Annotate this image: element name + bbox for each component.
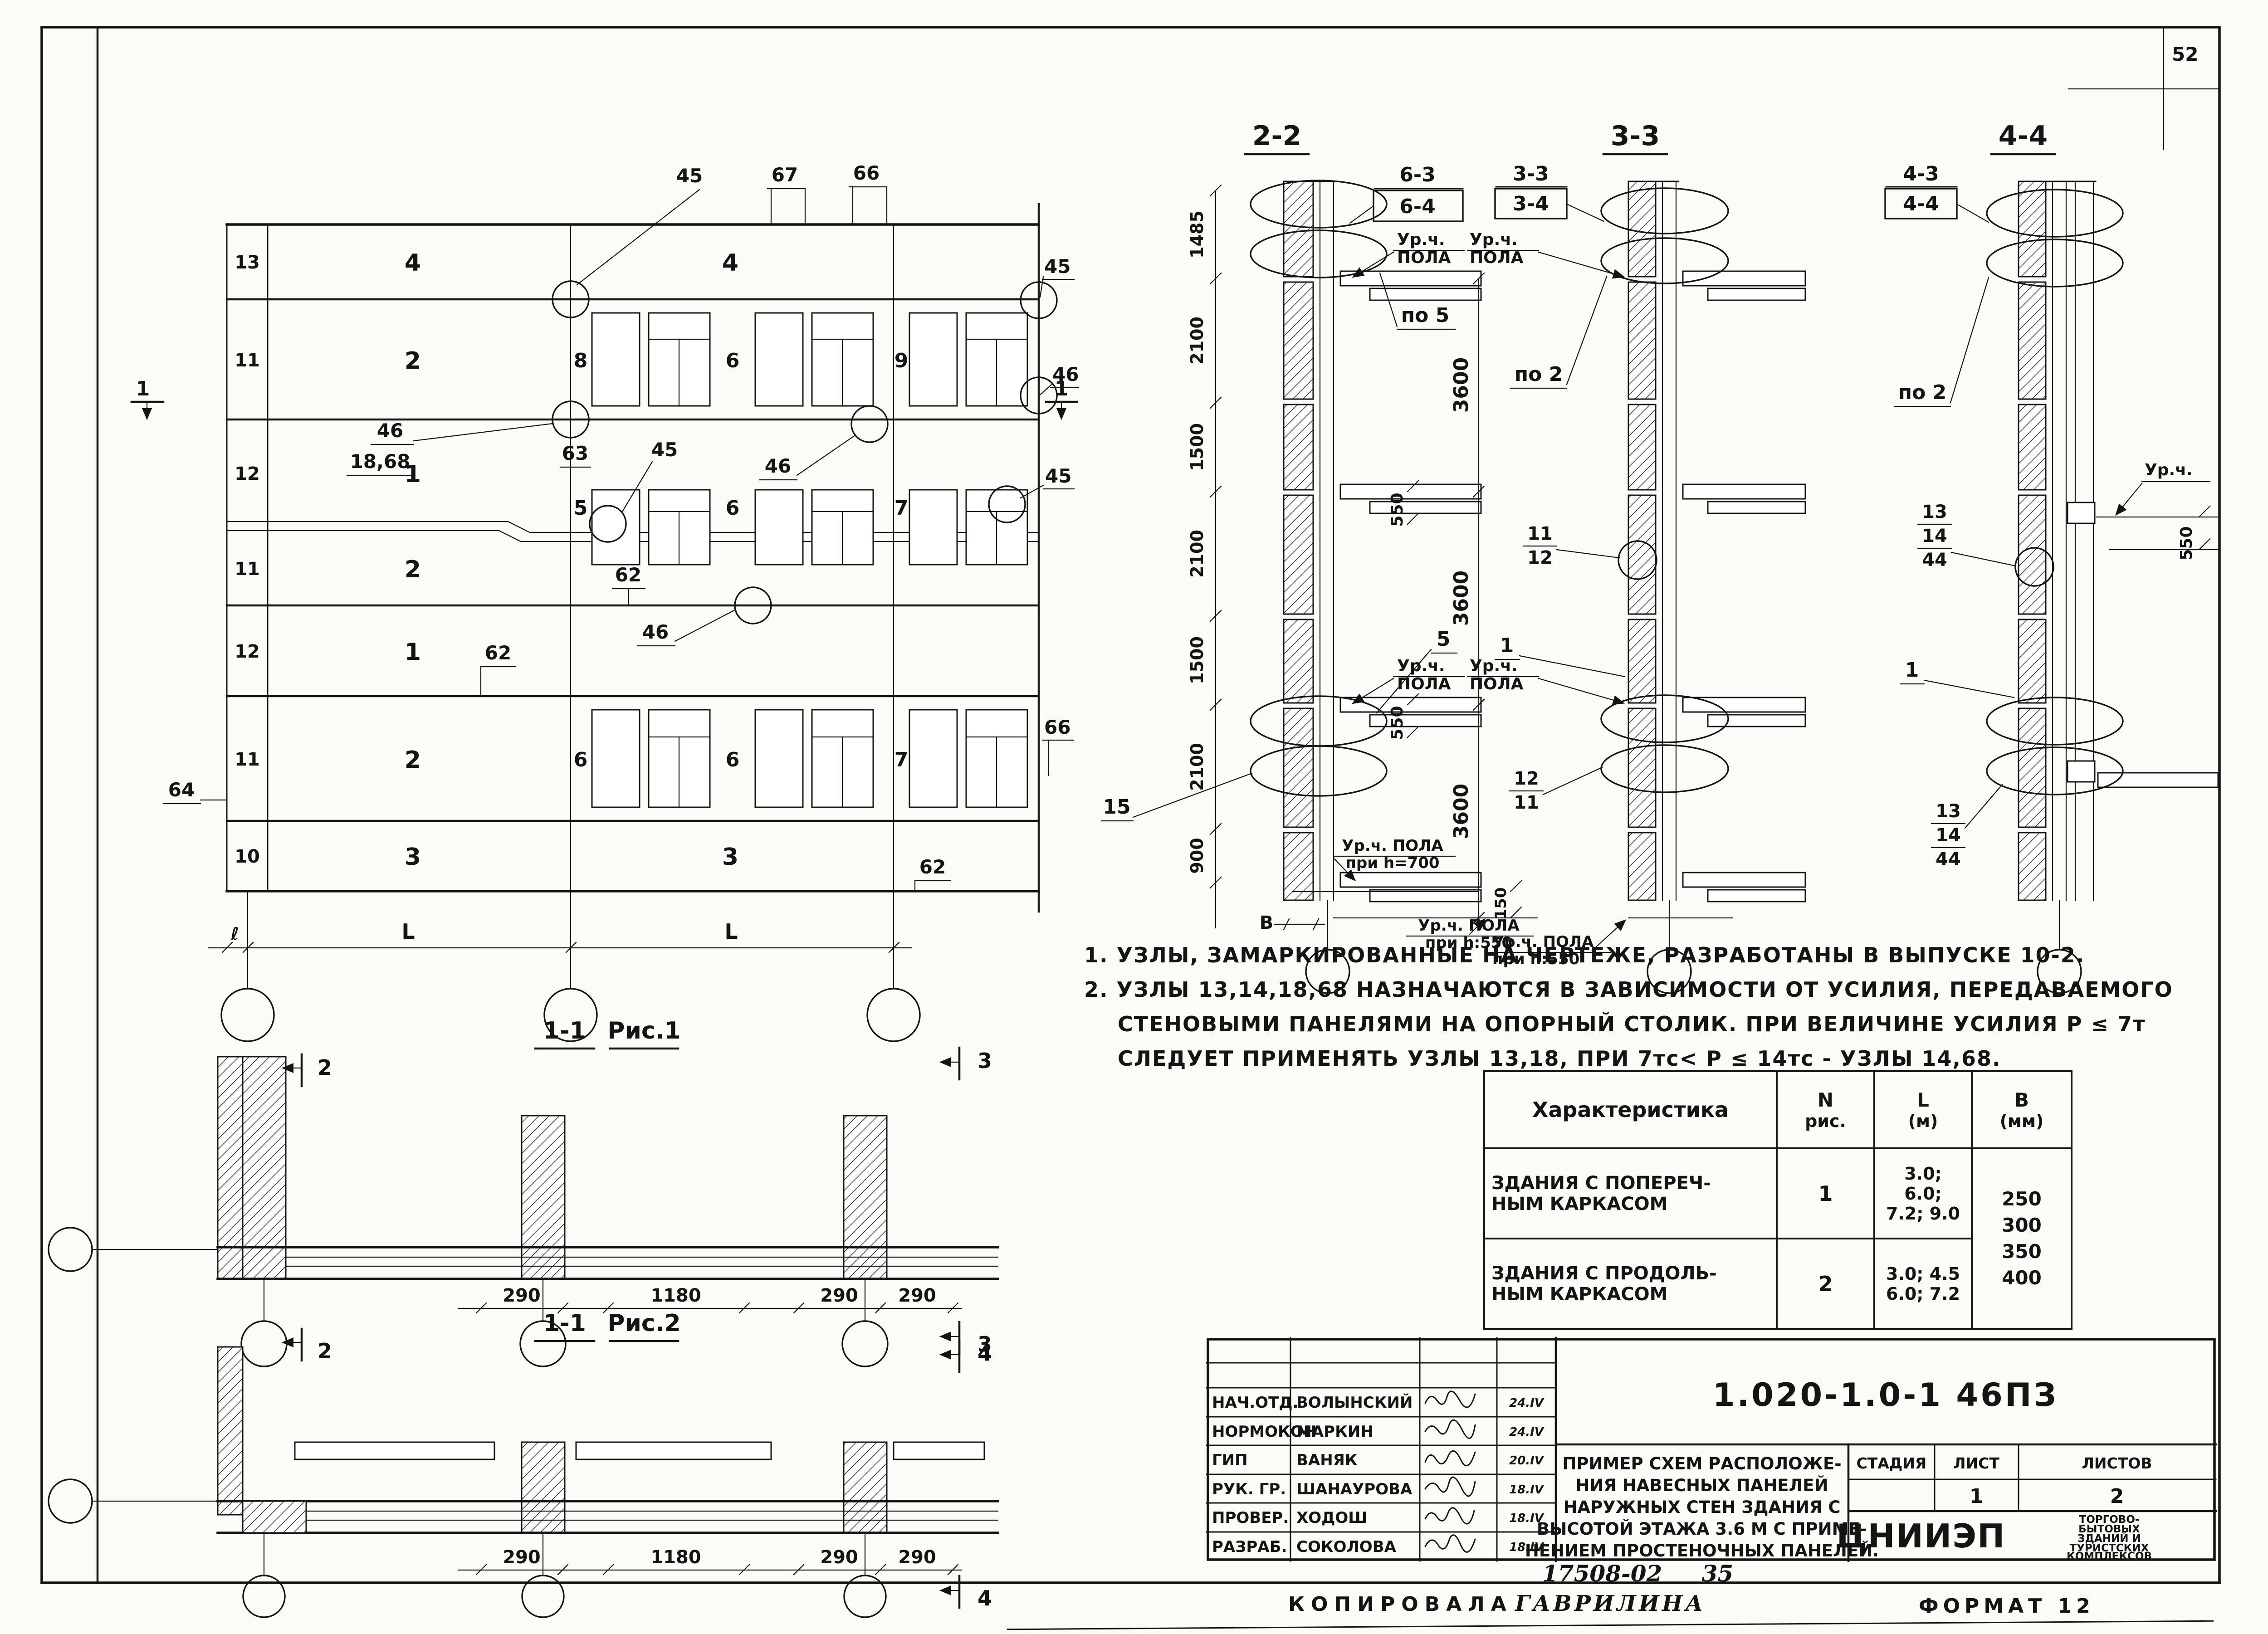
b-value: 350 [1973, 1239, 2071, 1265]
organization-name: ЦНИИЭП [1837, 1517, 2006, 1555]
dim-label: 290 [820, 1285, 858, 1306]
row-fig: 1 [1777, 1148, 1874, 1239]
row-id: 11 [235, 350, 260, 371]
dim-label: 550 [2177, 526, 2196, 560]
facade-right-callouts: 45 46 45 66 [1021, 255, 1079, 776]
section-flag-label: 3 [978, 1049, 992, 1073]
row-name-line: ЗДАНИЯ С ПОПЕРЕЧ- [1491, 1173, 1776, 1194]
section-title: 2-2 [1252, 120, 1301, 152]
dim-label: 1180 [650, 1547, 701, 1568]
sheet-value: 1 [1970, 1485, 1984, 1508]
panel-number: 2 [405, 556, 421, 583]
span-label: L [401, 919, 415, 944]
plan-title-fig: Рис.2 [607, 1310, 680, 1337]
callout-label: по 2 [1898, 381, 1947, 404]
l-value: 6.0; 7.2 [1875, 1284, 1971, 1304]
callout-label: 66 [1044, 716, 1070, 738]
sheets-label: ЛИСТОВ [2082, 1454, 2152, 1472]
ref-label: 4-3 [1903, 162, 1939, 185]
section-flag-label: 2 [318, 1055, 332, 1080]
note-line-2: 2. УЗЛЫ 13,14,18,68 НАЗНАЧАЮТСЯ В ЗАВИСИ… [1084, 972, 2214, 1007]
row-name-line: НЫМ КАРКАСОМ [1491, 1194, 1776, 1215]
plan-dims: 290 1180 290 290 [458, 1547, 962, 1575]
l-value: 6.0; [1875, 1184, 1971, 1204]
callout-label: 12 [1514, 768, 1539, 789]
role-label: ПРОВЕР. [1212, 1509, 1289, 1527]
drawing-sheet: 52 [0, 0, 2268, 1634]
panel-number: 4 [722, 249, 738, 277]
panel-number: 3 [722, 844, 738, 871]
plan-axis-bubbles [243, 1533, 886, 1617]
sign-date: 24.IV [1509, 1425, 1545, 1439]
sign-date: 24.IV [1509, 1396, 1545, 1410]
left-dim-chain: 1485 2100 1500 2100 1500 2100 900 [1187, 185, 1221, 928]
facade-row-ids: 13 11 12 11 12 11 10 [235, 252, 260, 867]
row-id: 11 [235, 749, 260, 770]
row-id: 12 [235, 641, 260, 662]
joint-callout-ovals [1987, 190, 2123, 795]
characteristics-table: Характеристика N рис. L (м) В (мм) ЗДАНИ… [1483, 1070, 2072, 1330]
role-label: ГИП [1212, 1451, 1248, 1469]
callout-label: 11 [1527, 523, 1553, 544]
floor-label: Ур.ч. [1397, 657, 1445, 675]
callout-label: 67 [772, 164, 798, 186]
b-value: 400 [1973, 1265, 2071, 1291]
header-line: (м) [1875, 1111, 1971, 1131]
floor-slabs [1683, 271, 1805, 902]
person-name: МАРКИН [1296, 1423, 1374, 1441]
floor-label: Ур.ч. ПОЛА [1342, 837, 1443, 855]
dim-label: 290 [503, 1285, 541, 1306]
dim-label: 550 [1388, 706, 1407, 740]
stamp-number: 17508-02 [1542, 1560, 1662, 1587]
callout-label: 15 [1103, 795, 1130, 819]
b-value: 300 [1973, 1212, 2071, 1239]
callout-label: 1 [1500, 634, 1514, 657]
signature [1425, 1535, 1475, 1552]
callout-label: 45 [651, 439, 678, 461]
dim-label: 550 [1388, 493, 1407, 527]
organization-block: ЦНИИЭП ТОРГОВО- БЫТОВЫХ ЗДАНИЙ И ТУРИСТС… [1837, 1514, 2152, 1562]
ref-label: 3-4 [1513, 192, 1549, 215]
sheets-value: 2 [2110, 1485, 2124, 1508]
dim-label: 2100 [1187, 317, 1207, 365]
floor-label: Ур.ч. [1470, 230, 1518, 249]
window-number: 6 [726, 497, 740, 520]
section-flag-label: 1 [136, 377, 150, 400]
callout-label: по 2 [1515, 363, 1563, 386]
note-line-3: СТЕНОВЫМИ ПАНЕЛЯМИ НА ОПОРНЫЙ СТОЛИК. ПР… [1084, 1007, 2214, 1041]
callout-label: 45 [1045, 465, 1071, 487]
panel-number: 2 [405, 347, 421, 375]
plan-title-fig: Рис.1 [607, 1017, 680, 1044]
callout-label: 13 [1936, 801, 1961, 822]
title-line: ВЫСОТОЙ ЭТАЖА 3.6 М С ПРИМЕ- [1537, 1519, 1867, 1539]
row-l-values: 3.0; 4.5 6.0; 7.2 [1874, 1239, 1972, 1329]
panel-number: 1 [405, 639, 421, 666]
dim-label: 2100 [1187, 743, 1207, 791]
table-row: ЗДАНИЯ С ПОПЕРЕЧ- НЫМ КАРКАСОМ 1 3.0; 6.… [1484, 1148, 2072, 1239]
signature [1425, 1420, 1475, 1438]
person-name: ШАНАУРОВА [1296, 1480, 1413, 1498]
callout-label: 45 [1044, 255, 1070, 278]
copied-name: ГАВРИЛИНА [1515, 1591, 1706, 1616]
person-name: ВАНЯК [1296, 1451, 1358, 1469]
window-number: 7 [894, 748, 909, 771]
callout-label: 11 [1514, 792, 1539, 813]
section-4-4: 4-4 4-3 [1819, 109, 2218, 998]
callout-label: 13 [1922, 502, 1947, 522]
row-fig: 2 [1777, 1239, 1874, 1329]
dim-label: 1485 [1187, 210, 1207, 259]
callout-label: 62 [615, 564, 641, 586]
header-line: L [1875, 1089, 1971, 1111]
span-label: ℓ [230, 924, 239, 944]
sign-date: 20.IV [1509, 1454, 1545, 1468]
plan-1-1-fig2: 1-1 Рис.2 290 [27, 1306, 1052, 1628]
callout-label: 46 [765, 455, 791, 477]
dim-label: 900 [1187, 838, 1207, 873]
row-name-line: НЫМ КАРКАСОМ [1491, 1284, 1776, 1305]
callout-label: 45 [676, 165, 703, 187]
format-label: ФОРМАТ 12 [1919, 1595, 2095, 1618]
floor-level-labels: Ур.ч. ПОЛА Ур.ч. ПОЛА Ур.ч. ПОЛА при h:5… [1467, 230, 1733, 968]
callout-label: 14 [1936, 825, 1961, 846]
panel-number: 2 [405, 746, 421, 774]
person-name: СОКОЛОВА [1296, 1538, 1397, 1556]
row-name-line: ЗДАНИЯ С ПРОДОЛЬ- [1491, 1263, 1776, 1284]
l-value: 7.2; 9.0 [1875, 1204, 1971, 1224]
dim-label: 1500 [1187, 423, 1207, 471]
signature [1425, 1477, 1475, 1496]
callouts: по 2 13 14 44 1 13 14 44 [1894, 278, 2016, 870]
plan-title: 1-1 [543, 1017, 586, 1044]
section-flag-label: 4 [978, 1586, 992, 1610]
signature [1425, 1451, 1475, 1465]
floor-label: Ур.ч. [2145, 461, 2193, 479]
note-line-1: 1. УЗЛЫ, ЗАМАРКИРОВАННЫЕ НА ЧЕРТЕЖЕ, РАЗ… [1084, 938, 2214, 972]
b-value: 250 [1973, 1186, 2071, 1212]
header-line: рис. [1778, 1111, 1873, 1131]
row-id: 13 [235, 252, 260, 273]
document-stamp: 17508-02 35 [1542, 1560, 1733, 1587]
floor-label: Ур.ч. [1470, 657, 1518, 675]
stamp-extra: 35 [1702, 1560, 1734, 1587]
title-line: НЕНИЕМ ПРОСТЕНОЧНЫХ ПАНЕЛЕЙ. [1525, 1541, 1879, 1561]
person-name: ХОДОШ [1296, 1509, 1367, 1527]
section-flag-label: 1 [1055, 377, 1069, 400]
callout-label: 63 [562, 442, 588, 464]
header-line: (мм) [1973, 1111, 2071, 1131]
callout-label: 62 [485, 642, 511, 664]
title-line: НАРУЖНЫХ СТЕН ЗДАНИЯ С [1563, 1497, 1840, 1517]
title-line: ПРИМЕР СХЕМ РАСПОЛОЖЕ- [1562, 1454, 1841, 1473]
dim-label: 2100 [1187, 530, 1207, 578]
stage-sheet-block: СТАДИЯ ЛИСТ ЛИСТОВ 1 2 [1857, 1454, 2152, 1508]
dim-label: 1500 [1187, 636, 1207, 684]
signature [1425, 1391, 1475, 1407]
row-id: 11 [235, 559, 260, 580]
plan-title: 1-1 [543, 1310, 586, 1337]
panel-number: 3 [405, 844, 421, 871]
col-header-fig: N рис. [1777, 1071, 1874, 1148]
title-line: НИЯ НАВЕСНЫХ ПАНЕЛЕЙ [1575, 1475, 1828, 1495]
role-label: РАЗРАБ. [1212, 1538, 1287, 1556]
window-number: 6 [726, 748, 740, 771]
callout-label: 14 [1922, 526, 1947, 546]
span-label: L [724, 919, 738, 944]
header-line: N [1778, 1089, 1873, 1111]
general-notes: 1. УЗЛЫ, ЗАМАРКИРОВАННЫЕ НА ЧЕРТЕЖЕ, РАЗ… [1084, 938, 2214, 1076]
title-block: НАЧ.ОТД. ВОЛЫНСКИЙ НОРМОКОН МАРКИН ГИП В… [1207, 1338, 2216, 1561]
dim-label: В [1260, 912, 1274, 933]
dim-label: 290 [503, 1547, 541, 1568]
row-id: 12 [235, 463, 260, 484]
l-value: 3.0; [1875, 1164, 1971, 1184]
callout-label: 1 [1905, 658, 1919, 682]
floor-label: ПОЛА [1470, 675, 1524, 693]
dim-label: 290 [898, 1547, 936, 1568]
section-flag-label: 4 [978, 1341, 992, 1366]
floor-label: Ур.ч. [1397, 230, 1445, 249]
wall-panels [1284, 181, 1334, 900]
callouts: по 2 11 12 1 12 11 [1495, 277, 1625, 813]
facade-windows [592, 313, 1027, 807]
floor-label: ПОЛА [1470, 249, 1524, 267]
callout-label: 18,68 [350, 450, 411, 473]
ref-box: 3-3 3-4 [1495, 162, 1604, 221]
floor-level-labels: Ур.ч. 550 [2097, 461, 2218, 561]
axis-bubble [49, 1228, 92, 1271]
section-title: 4-4 [1999, 120, 2048, 152]
sign-date: 18.IV [1509, 1483, 1545, 1497]
person-name: ВОЛЫНСКИЙ [1296, 1393, 1413, 1412]
signature [1425, 1508, 1474, 1524]
col-header-b: В (мм) [1972, 1071, 2072, 1148]
dim-label: 290 [820, 1547, 858, 1568]
row-name: ЗДАНИЯ С ПОПЕРЕЧ- НЫМ КАРКАСОМ [1484, 1148, 1777, 1239]
callout-label: 44 [1922, 550, 1947, 571]
row-id: 10 [235, 846, 260, 867]
row-b-values: 250 300 350 400 [1972, 1148, 2072, 1329]
callout-label: 64 [168, 779, 195, 801]
window-number: 9 [894, 349, 909, 372]
plan-walls [218, 1057, 998, 1279]
row-l-values: 3.0; 6.0; 7.2; 9.0 [1874, 1148, 1972, 1239]
callout-label: 62 [919, 856, 946, 878]
dim-label: 290 [898, 1285, 936, 1306]
window-number: 6 [726, 349, 740, 372]
window-number: 6 [574, 748, 588, 771]
callout-label: 46 [377, 419, 403, 442]
l-value: 3.0; 4.5 [1875, 1264, 1971, 1284]
axis-bubble [49, 1479, 92, 1523]
dim-label: 1180 [650, 1285, 701, 1306]
plan-walls [218, 1347, 998, 1533]
page-number: 52 [2172, 43, 2198, 65]
ref-label: 4-4 [1903, 192, 1939, 215]
stage-label: СТАДИЯ [1857, 1454, 1927, 1472]
window-number: 7 [894, 497, 909, 520]
org-line: КОМПЛЕКСОВ [2067, 1551, 2152, 1562]
section-title: 3-3 [1611, 120, 1660, 152]
sheet-label: ЛИСТ [1953, 1454, 1999, 1472]
callout-label: 46 [642, 621, 669, 643]
callout-label: 12 [1527, 547, 1553, 568]
header-line: В [1973, 1089, 2071, 1111]
facade-elevation: 13 11 12 11 12 11 10 4 2 1 2 1 2 3 4 3 8… [118, 68, 1080, 1057]
window-number: 5 [574, 497, 588, 520]
callout-label: 44 [1936, 849, 1961, 870]
ref-label: 3-3 [1513, 162, 1549, 185]
window-number: 8 [574, 349, 588, 372]
section-3-3: 3-3 [1442, 109, 1819, 998]
col-header-l: L (м) [1874, 1071, 1972, 1148]
callout-label: 66 [853, 162, 880, 184]
row-name: ЗДАНИЯ С ПРОДОЛЬ- НЫМ КАРКАСОМ [1484, 1239, 1777, 1329]
col-header-characteristic: Характеристика [1484, 1071, 1777, 1148]
drawing-title: ПРИМЕР СХЕМ РАСПОЛОЖЕ- НИЯ НАВЕСНЫХ ПАНЕ… [1525, 1454, 1879, 1561]
role-label: РУК. ГР. [1212, 1480, 1286, 1498]
document-number: 1.020-1.0-1 46ПЗ [1713, 1376, 2058, 1414]
role-label: НАЧ.ОТД. [1212, 1394, 1298, 1412]
ref-label: 6-4 [1399, 195, 1436, 218]
panel-number: 4 [405, 249, 421, 277]
ref-label: 6-3 [1399, 163, 1436, 186]
copied-label: КОПИРОВАЛА [1288, 1593, 1513, 1616]
ref-box: 4-3 4-4 [1885, 162, 1989, 222]
